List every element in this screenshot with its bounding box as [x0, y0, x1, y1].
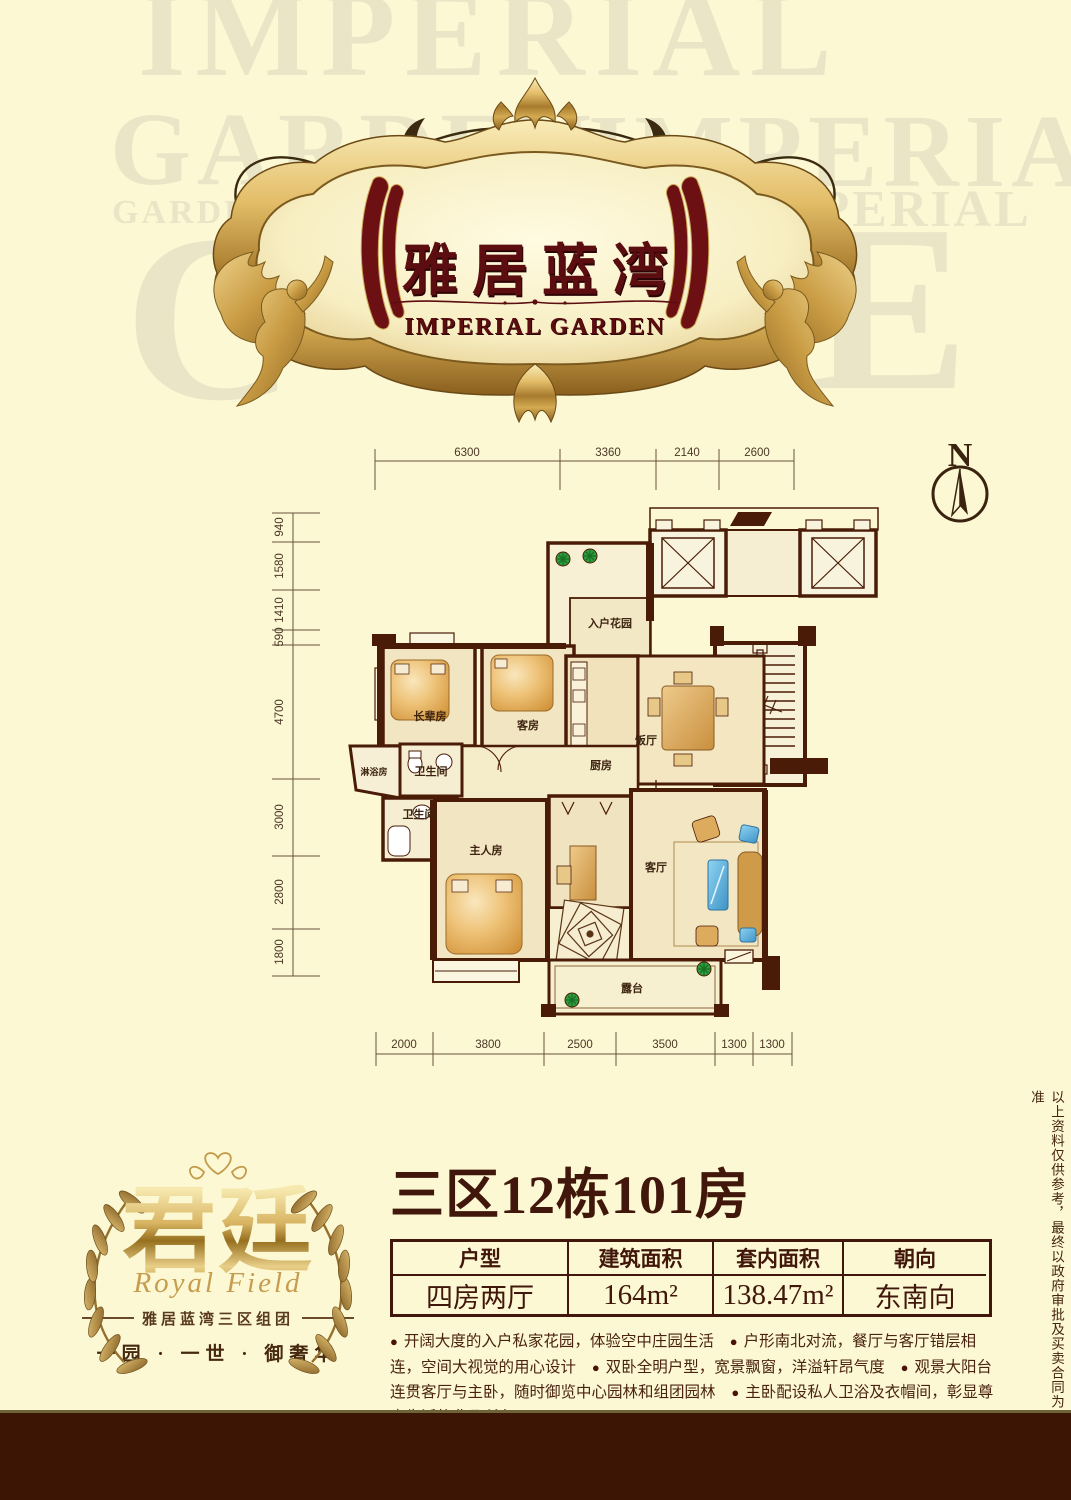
svg-text:2600: 2600: [744, 447, 770, 459]
room-label: 淋浴房: [360, 766, 387, 777]
svg-text:1410: 1410: [274, 597, 286, 623]
svg-text:2000: 2000: [391, 1039, 417, 1051]
royal-field-logo: 君廷 Royal Field 雅居蓝湾三区组团 一园 · 一世 · 御奢华: [66, 1148, 370, 1388]
svg-text:4700: 4700: [274, 699, 286, 725]
room-label: 客厅: [644, 860, 667, 874]
svg-text:940: 940: [274, 517, 286, 536]
svg-text:1580: 1580: [274, 553, 286, 579]
svg-text:3500: 3500: [652, 1039, 678, 1051]
brand-name-en: IMPERIAL GARDEN: [195, 314, 875, 341]
room-label: 卫生间: [415, 764, 448, 778]
spec-header-type: 户型: [393, 1242, 569, 1276]
spec-value-built-area: 164m²: [569, 1276, 714, 1314]
spec-value-inner-area: 138.47m²: [714, 1276, 844, 1314]
room-label: 入户花园: [588, 616, 632, 630]
svg-text:590: 590: [274, 627, 286, 646]
floorplan-drawing: 6300 3360 2140 2600 940 1580 1410 590 47…: [270, 428, 1010, 1118]
brand-emblem: 雅居蓝湾 IMPERIAL GARDEN: [195, 68, 875, 443]
unit-title: 三区12栋101房: [390, 1166, 1000, 1225]
north-compass: N: [918, 430, 998, 535]
room-label: 厨房: [590, 758, 612, 772]
spec-header-orientation: 朝向: [844, 1242, 986, 1276]
svg-text:3360: 3360: [595, 447, 621, 459]
feature-item: ●开阔大度的入户私家花园，体验空中庄园生活: [390, 1333, 714, 1350]
property-poster: IMPERIAL GARDEN IMPERIAL GARDEN IMPERIAL…: [0, 0, 1071, 1500]
spec-table: 户型 建筑面积 套内面积 朝向 四房两厅 164m² 138.47m² 东南向: [390, 1239, 992, 1317]
bullet-icon: ●: [390, 1334, 398, 1349]
room-label: 卫生间: [403, 807, 436, 821]
room-label: 露台: [621, 981, 643, 995]
unit-info: 三区12栋101房 户型 建筑面积 套内面积 朝向 四房两厅 164m² 138…: [390, 1166, 1000, 1430]
compass-needle: [960, 469, 968, 515]
room-label: 长辈房: [414, 709, 447, 723]
feature-item: ●双卧全明户型，宽景飘窗，洋溢轩昂气度: [592, 1359, 885, 1376]
emblem-divider-flourish: [195, 294, 875, 315]
svg-text:1300: 1300: [721, 1039, 747, 1051]
bullet-icon: ●: [731, 1385, 739, 1400]
disclaimer-vertical-text: 以上资料仅供参考，最终以政府审批及买卖合同为准: [1026, 1090, 1066, 1420]
spec-value-type: 四房两厅: [393, 1276, 569, 1314]
footer-bar: [0, 1410, 1071, 1500]
building-structure: [350, 508, 878, 1017]
room-label: 客房: [516, 718, 539, 732]
spec-header-inner-area: 套内面积: [714, 1242, 844, 1276]
spec-value-orientation: 东南向: [844, 1276, 986, 1314]
floorplan: 6300 3360 2140 2600 940 1580 1410 590 47…: [270, 428, 1010, 1118]
svg-text:1300: 1300: [759, 1039, 785, 1051]
svg-text:2800: 2800: [274, 879, 286, 905]
svg-text:1800: 1800: [274, 939, 286, 965]
spec-header-built-area: 建筑面积: [569, 1242, 714, 1276]
bullet-icon: ●: [592, 1360, 600, 1375]
room-label: 饭厅: [634, 733, 657, 747]
parasol: [556, 900, 624, 968]
svg-text:3000: 3000: [274, 804, 286, 830]
room-label: 主人房: [470, 843, 503, 857]
compass-needle: [952, 469, 960, 515]
bullet-icon: ●: [901, 1360, 909, 1375]
bullet-icon: ●: [730, 1334, 738, 1349]
svg-text:3800: 3800: [475, 1039, 501, 1051]
svg-text:6300: 6300: [454, 447, 480, 459]
logo-name-en: Royal Field: [66, 1267, 370, 1300]
svg-text:2140: 2140: [674, 447, 700, 459]
svg-text:2500: 2500: [567, 1039, 593, 1051]
